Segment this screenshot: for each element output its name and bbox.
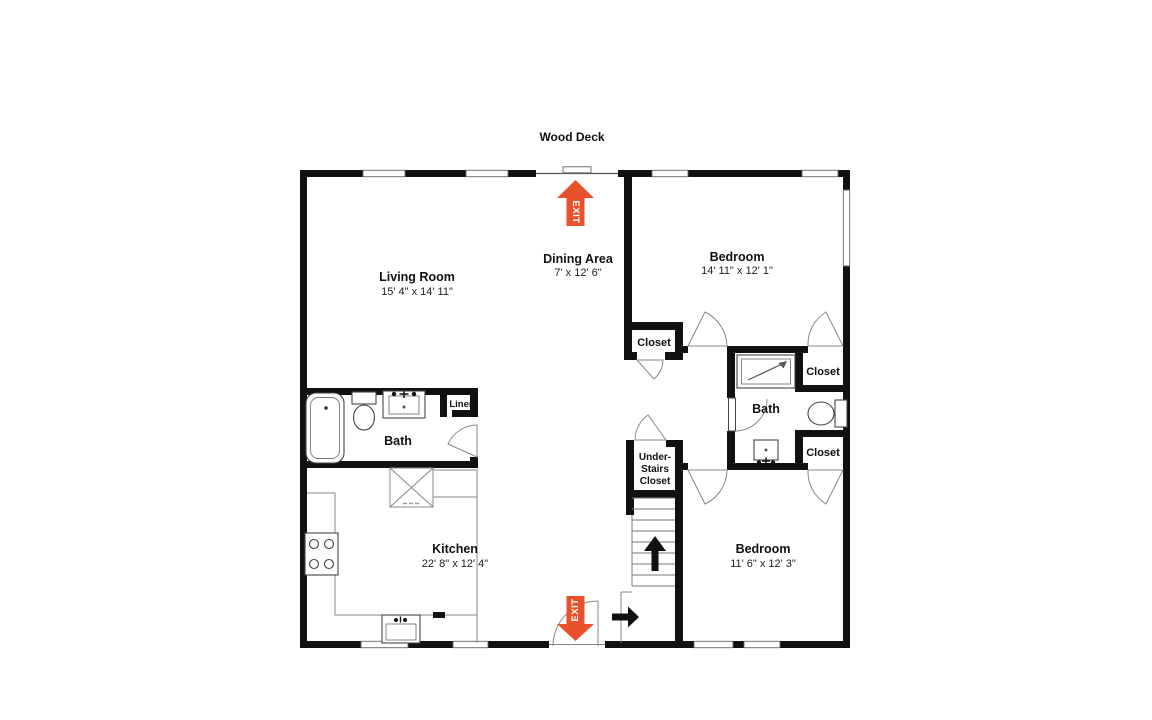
kitchen-name: Kitchen <box>432 542 478 556</box>
bathtub <box>306 393 344 463</box>
bath-left-label: Bath <box>384 434 412 448</box>
toilet-left <box>352 392 376 430</box>
window-top-2 <box>466 170 508 176</box>
window-right-1 <box>843 190 849 266</box>
under-stairs-closet-label: Under- Stairs Closet <box>639 452 671 487</box>
svg-text:Under-: Under- <box>639 452 671 463</box>
window-bottom-4 <box>744 641 780 647</box>
floor-plan: EXIT EXIT Wood Deck Living Room 15' 4" x… <box>0 0 1152 720</box>
window-top-3 <box>652 170 688 176</box>
exit-arrow-top: EXIT <box>557 180 594 226</box>
closet-top-right-label: Closet <box>806 366 840 378</box>
svg-text:Stairs: Stairs <box>641 464 669 475</box>
bedroom-top-name: Bedroom <box>710 250 765 264</box>
window-top-4 <box>802 170 838 176</box>
dining-area-name: Dining Area <box>543 252 614 266</box>
door-bedroom-top-closet <box>808 312 843 346</box>
utility-unit <box>390 468 433 507</box>
counter-wall-stub <box>433 612 445 618</box>
sink-middle <box>754 440 778 465</box>
linen-closet-label: Linen <box>449 399 475 410</box>
kitchen-dims: 22' 8" x 12' 4" <box>422 558 489 570</box>
door-bedroom-top-hall <box>688 312 727 346</box>
sink-vanity-left <box>383 391 425 418</box>
dining-area-dims: 7' x 12' 6" <box>554 267 601 279</box>
window-bottom-2 <box>453 641 488 647</box>
closet-bottom-right-label: Closet <box>806 447 840 459</box>
bedroom-bottom-name: Bedroom <box>736 542 791 556</box>
wood-deck-label: Wood Deck <box>539 130 604 144</box>
bath-middle-label: Bath <box>752 402 780 416</box>
stove <box>305 533 338 575</box>
door-bedroom-bottom-hall <box>688 470 727 504</box>
kitchen-cabinet <box>433 470 477 497</box>
door-bath-left <box>448 425 477 457</box>
hall-closet-label: Closet <box>637 337 671 349</box>
bedroom-bottom-dims: 11' 6" x 12' 3" <box>730 558 796 570</box>
living-room-dims: 15' 4" x 14' 11" <box>381 286 453 298</box>
exit-label-bottom: EXIT <box>570 598 581 621</box>
shower <box>737 355 795 388</box>
window-top-1 <box>363 170 405 176</box>
entry-direction-arrow-icon <box>612 607 639 628</box>
exit-label-top: EXIT <box>570 200 581 223</box>
window-bottom-3 <box>694 641 733 647</box>
door-bedroom-bottom-closet <box>808 470 843 504</box>
living-room-name: Living Room <box>379 270 455 284</box>
toilet-middle <box>808 400 847 427</box>
bedroom-top-dims: 14' 11" x 12' 1" <box>701 265 773 277</box>
door-hall-closet <box>637 360 663 379</box>
svg-text:Closet: Closet <box>640 476 671 487</box>
door-under-stairs-closet <box>635 415 666 440</box>
deck-sliding-door <box>536 167 618 174</box>
kitchen-sink <box>382 615 420 643</box>
